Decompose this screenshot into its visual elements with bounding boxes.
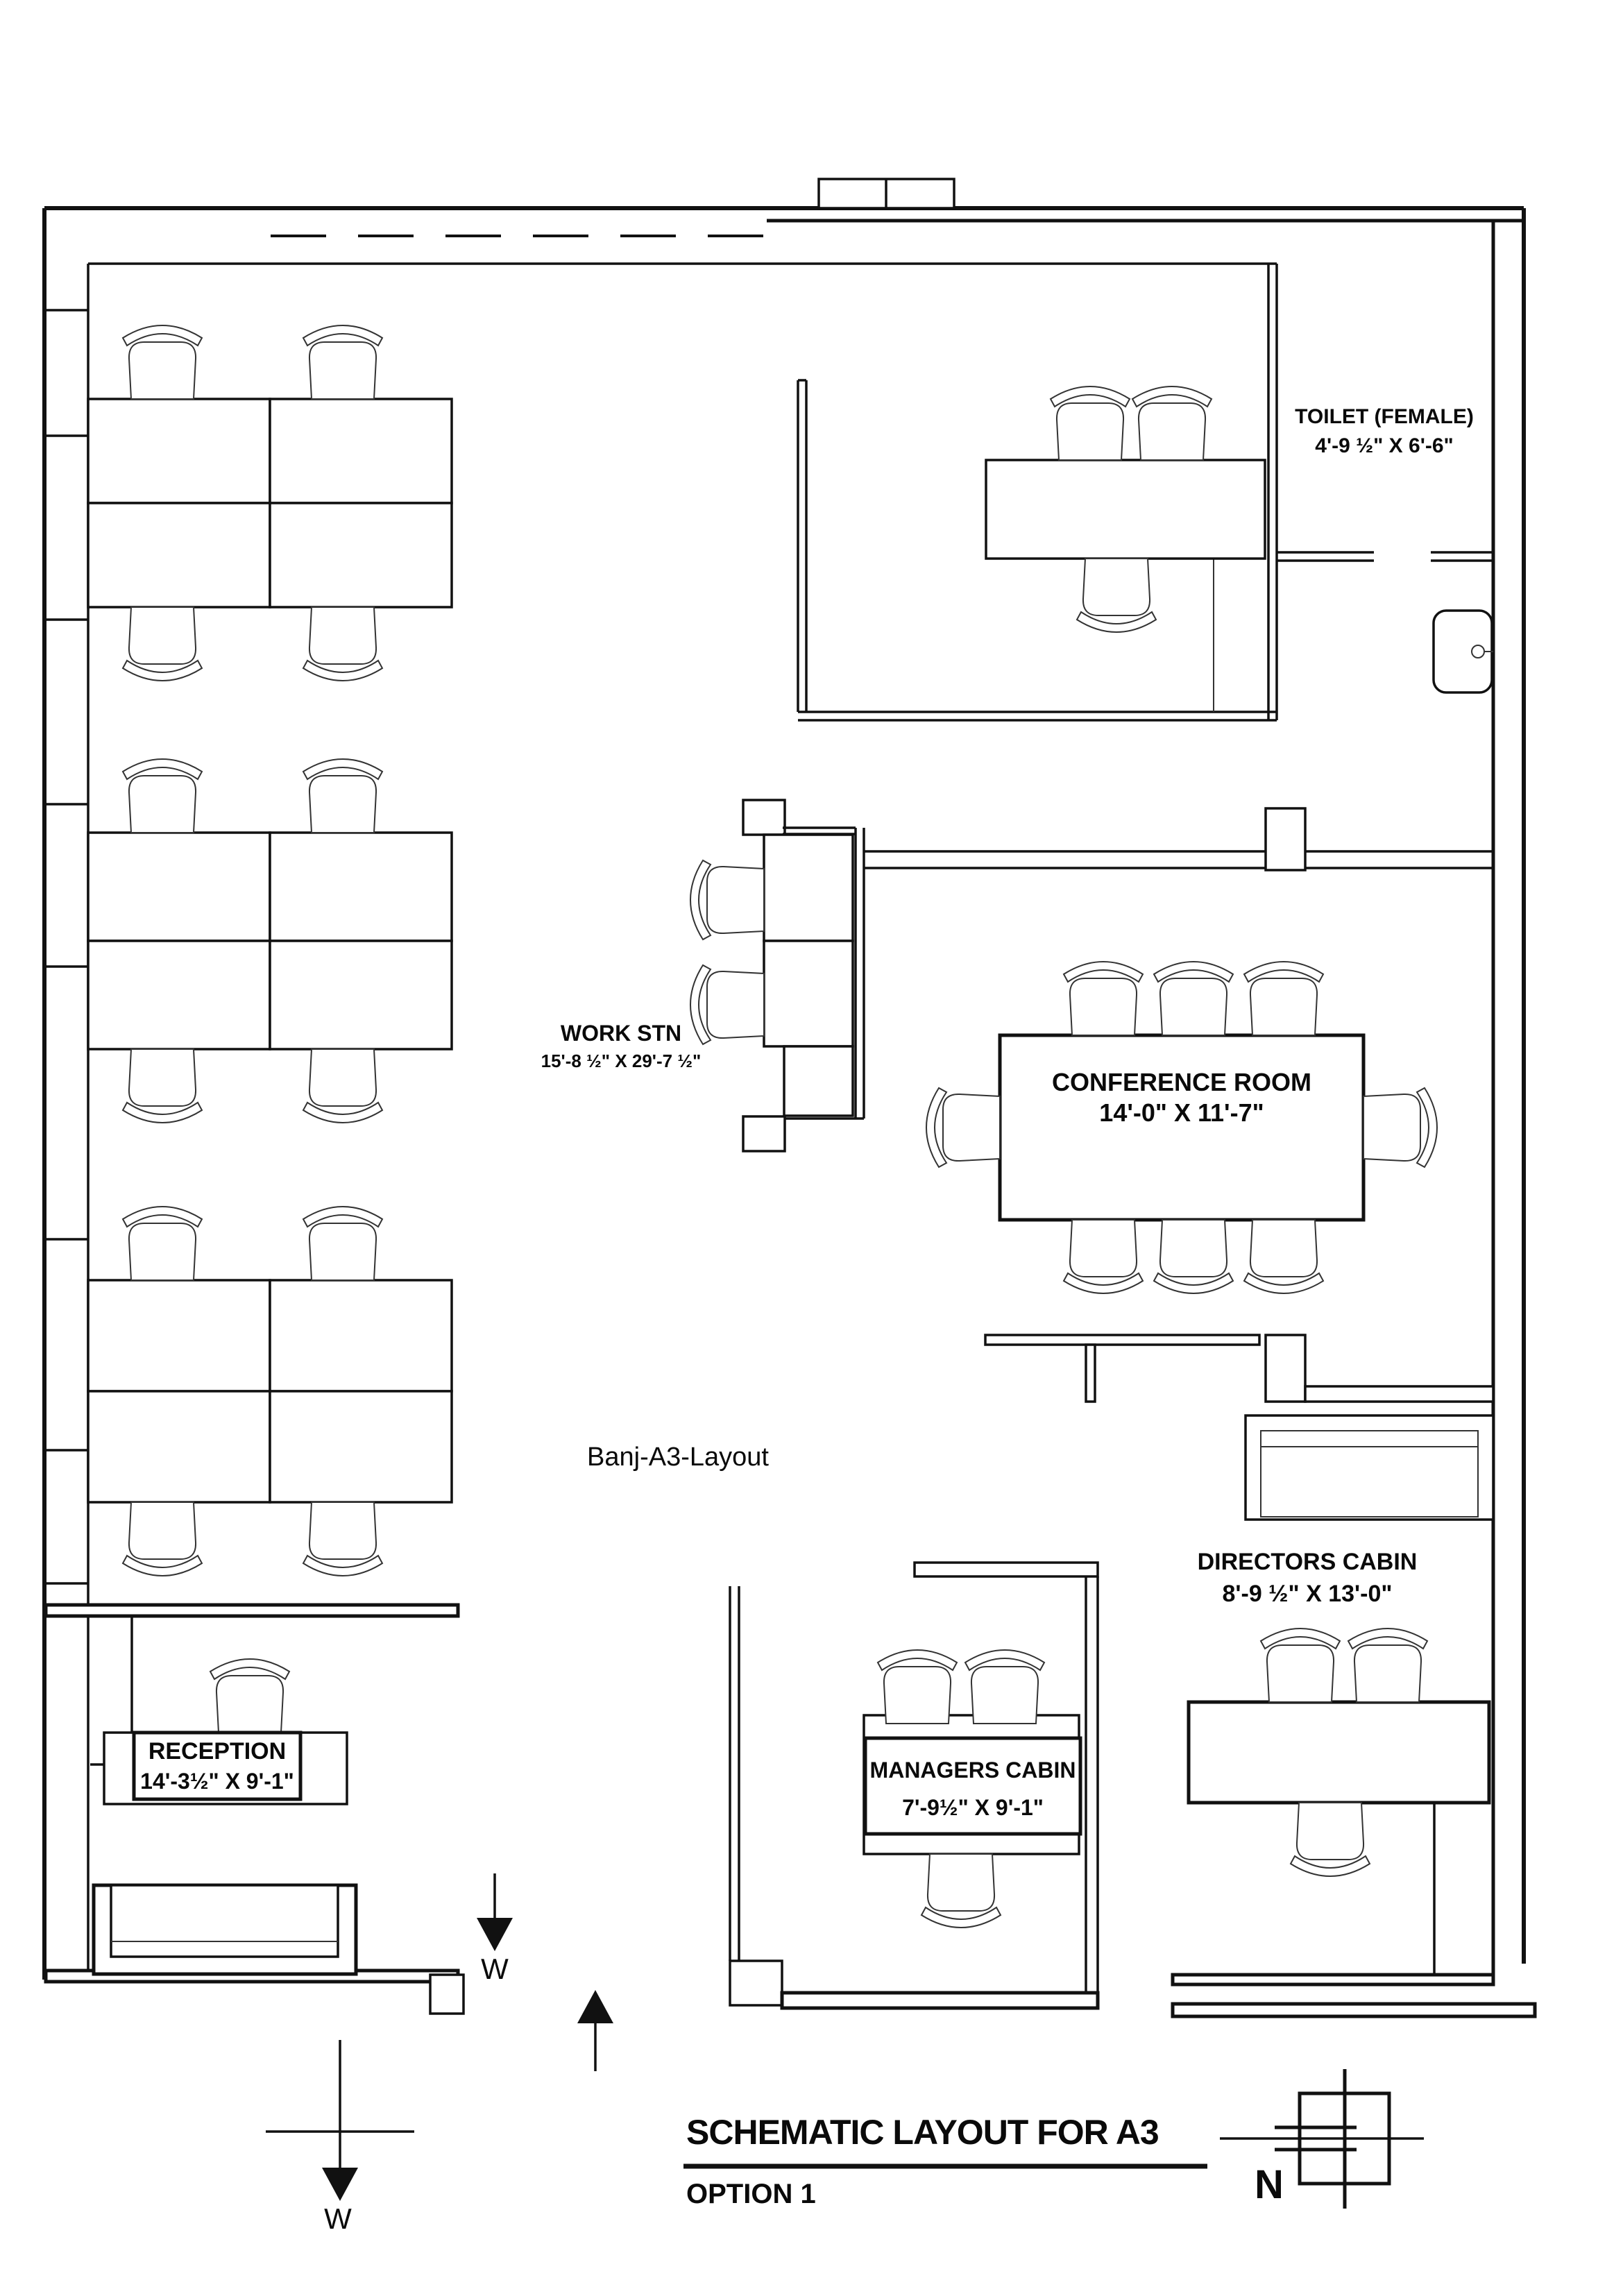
workstation-side-chair	[690, 965, 764, 1044]
toilet-dims: 4'-9 ½" X 6'-6"	[1315, 434, 1453, 457]
managers-label-box: MANAGERS CABIN 7'-9½" X 9'-1"	[865, 1738, 1080, 1834]
reception-chair	[210, 1659, 289, 1733]
storage-cabinet	[764, 941, 853, 1046]
managers-dims: 7'-9½" X 9'-1"	[902, 1795, 1044, 1820]
directors-cabin: DIRECTORS CABIN 8'-9 ½" X 13'-0"	[1189, 1415, 1493, 1975]
directors-cupboard	[1246, 1415, 1493, 1520]
sheet-option: OPTION 1	[686, 2179, 816, 2209]
reception-label-box: RECEPTION 14'-3½" X 9'-1"	[134, 1733, 300, 1799]
reception-dims: 14'-3½" X 9'-1"	[140, 1769, 294, 1794]
managers-cabin: MANAGERS CABIN 7'-9½" X 9'-1"	[730, 1563, 1098, 1993]
reception-top-wall	[46, 1605, 458, 1616]
conference-table	[1000, 1035, 1363, 1220]
conference-bottom-wall	[985, 1335, 1493, 1402]
wall-column	[430, 1975, 464, 2014]
conference-label: CONFERENCE ROOM	[1052, 1068, 1311, 1096]
compass-west-label: W	[324, 2202, 352, 2235]
cabin-table	[986, 460, 1265, 559]
storage-cabinet	[764, 835, 853, 941]
top-wall-door-recess	[819, 179, 954, 208]
entry-west-label: W	[481, 1953, 509, 1985]
drawing-label: Banj-A3-Layout	[587, 1443, 769, 1472]
title-block: SCHEMATIC LAYOUT FOR A3 OPTION 1	[683, 2113, 1207, 2209]
sheet-title: SCHEMATIC LAYOUT FOR A3	[686, 2113, 1159, 2152]
toilet-label: TOILET (FEMALE)	[1295, 405, 1474, 428]
conference-room: CONFERENCE ROOM 14'-0" X 11'-7"	[864, 808, 1493, 1402]
conference-dims: 14'-0" X 11'-7"	[1099, 1098, 1264, 1127]
workstation-label: WORK STN	[561, 1021, 681, 1046]
storage-cabinet	[784, 1046, 853, 1116]
workstation-label-group: WORK STN 15'-8 ½" X 29'-7 ½"	[541, 1021, 702, 1071]
floor-plan-canvas: RECEPTION 14'-3½" X 9'-1" WORK STN	[0, 0, 1623, 2296]
sink-icon	[1434, 611, 1493, 692]
west-exit-arrow-icon	[477, 1873, 513, 1951]
reception-area: RECEPTION 14'-3½" X 9'-1"	[46, 1605, 458, 1974]
wall-column	[743, 800, 785, 835]
workstation-cluster-2	[88, 759, 452, 1123]
reception-label: RECEPTION	[148, 1738, 286, 1764]
compass-west-icon: W	[266, 2040, 414, 2235]
reception-sofa	[94, 1885, 356, 1974]
wall-column	[730, 1961, 782, 2005]
workstation-dims: 15'-8 ½" X 29'-7 ½"	[541, 1051, 702, 1071]
wall-column	[1266, 808, 1305, 870]
wall-column	[1266, 1335, 1305, 1402]
north-label: N	[1255, 2162, 1284, 2207]
floor-plan-drawing: RECEPTION 14'-3½" X 9'-1" WORK STN	[0, 0, 1623, 2296]
wall-column	[743, 1116, 785, 1151]
left-wall-window-ticks	[46, 310, 88, 1583]
workstation-cluster-1	[88, 325, 452, 681]
toilet-room: TOILET (FEMALE) 4'-9 ½" X 6'-6"	[1277, 405, 1493, 692]
managers-top-wall	[915, 1563, 1098, 1576]
directors-dims: 8'-9 ½" X 13'-0"	[1223, 1581, 1393, 1607]
directors-desk	[1189, 1702, 1489, 1803]
storage-cabinet-wall	[690, 800, 864, 1151]
directors-label: DIRECTORS CABIN	[1198, 1549, 1418, 1575]
top-middle-cabin	[798, 264, 1277, 720]
workstation-side-chair	[690, 860, 764, 939]
entry-arrows: W	[477, 1873, 613, 2071]
workstation-cluster-3	[88, 1207, 452, 1576]
entry-up-arrow-icon	[577, 1990, 613, 2071]
managers-label: MANAGERS CABIN	[870, 1758, 1076, 1783]
north-symbol-icon: N	[1220, 2069, 1424, 2209]
